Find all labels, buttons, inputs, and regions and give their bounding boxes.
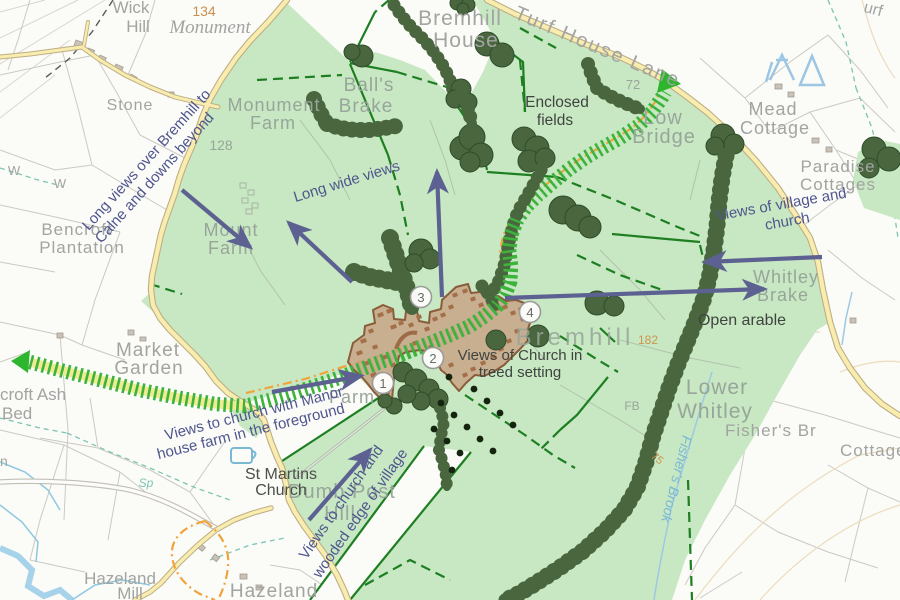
svg-text:croft Ash: croft Ash (0, 385, 66, 404)
svg-text:4: 4 (526, 305, 533, 320)
svg-text:Farm: Farm (250, 113, 296, 133)
svg-text:Garden: Garden (114, 358, 183, 379)
svg-text:1: 1 (379, 376, 386, 391)
svg-text:House: House (433, 29, 499, 52)
svg-text:Cottage: Cottage (740, 118, 810, 138)
svg-text:Plantation: Plantation (39, 238, 125, 257)
svg-text:St Martins: St Martins (245, 466, 317, 483)
svg-text:Ball's: Ball's (344, 75, 395, 96)
svg-text:W: W (8, 163, 21, 178)
svg-text:W: W (54, 176, 67, 191)
svg-text:Stone: Stone (107, 97, 154, 114)
svg-text:Monument: Monument (227, 95, 320, 115)
svg-text:Monument: Monument (168, 17, 251, 38)
svg-text:n: n (0, 453, 8, 469)
svg-text:treed setting: treed setting (479, 364, 562, 381)
svg-text:Enclosed: Enclosed (525, 94, 589, 111)
svg-text:Wick: Wick (113, 0, 150, 17)
svg-text:Hazeland: Hazeland (230, 581, 318, 600)
svg-text:FB: FB (624, 399, 639, 413)
svg-text:2: 2 (429, 351, 436, 366)
svg-text:Church: Church (255, 482, 307, 499)
svg-text:134: 134 (192, 3, 216, 19)
svg-text:Mill: Mill (117, 584, 143, 600)
svg-text:Bridge: Bridge (632, 126, 696, 148)
svg-text:Open arable: Open arable (698, 312, 786, 329)
svg-text:Lower: Lower (686, 376, 748, 399)
svg-text:Farm: Farm (208, 238, 254, 258)
svg-text:Paradise: Paradise (800, 157, 875, 176)
svg-text:Fisher's Br: Fisher's Br (725, 421, 817, 440)
svg-text:fields: fields (537, 112, 573, 129)
svg-text:Whitley: Whitley (677, 400, 753, 423)
svg-text:Bremhill: Bremhill (418, 7, 502, 30)
svg-text:Whitley: Whitley (753, 267, 819, 287)
svg-text:Views of Church in: Views of Church in (458, 347, 583, 364)
svg-text:Cottage: Cottage (840, 441, 900, 460)
svg-text:Bed: Bed (2, 404, 32, 423)
svg-text:182: 182 (638, 333, 658, 347)
svg-text:Hill: Hill (126, 17, 150, 36)
svg-text:Brake: Brake (757, 285, 809, 305)
svg-text:72: 72 (626, 77, 640, 92)
svg-text:Brake: Brake (339, 96, 394, 117)
svg-text:Sp: Sp (139, 476, 154, 490)
svg-text:128: 128 (209, 137, 233, 153)
svg-text:Mead: Mead (748, 99, 797, 119)
svg-text:3: 3 (417, 290, 424, 305)
